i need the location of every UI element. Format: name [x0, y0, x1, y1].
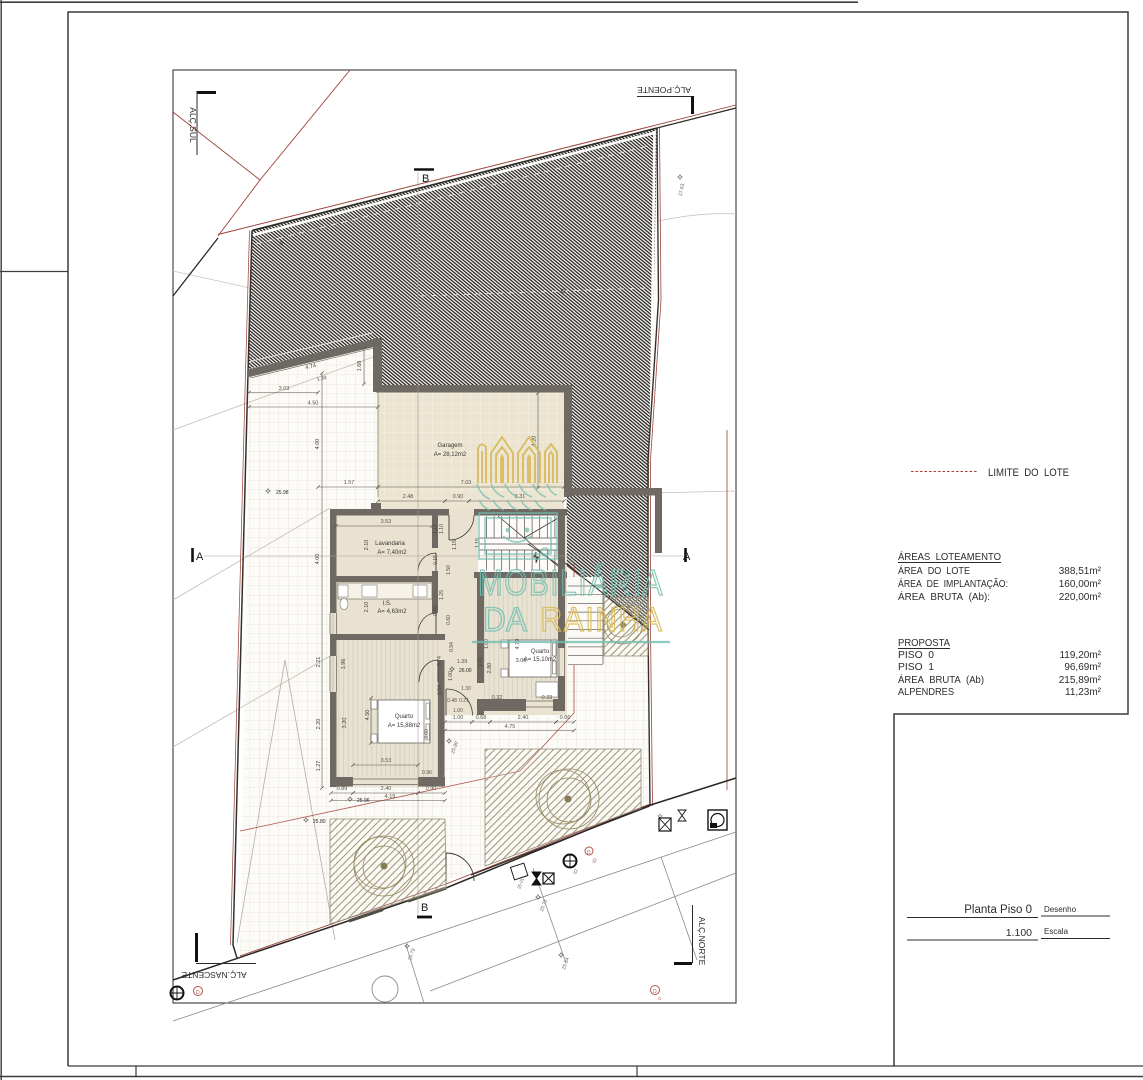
svg-text:0.74: 0.74	[437, 656, 443, 666]
svg-text:25.96: 25.96	[357, 798, 370, 804]
svg-text:A= 15,10m2: A= 15,10m2	[524, 657, 557, 663]
svg-text:4.50: 4.50	[365, 710, 371, 721]
svg-text:1.57: 1.57	[344, 480, 355, 486]
svg-text:4.00: 4.00	[315, 554, 321, 565]
svg-text:ALPENDRES: ALPENDRES	[898, 687, 954, 698]
svg-text:PROPOSTA: PROPOSTA	[898, 637, 950, 649]
svg-text:ÁREA DO LOTE: ÁREA DO LOTE	[898, 564, 970, 577]
svg-text:D: D	[653, 989, 657, 995]
svg-text:1.00: 1.00	[448, 671, 454, 681]
svg-text:1.27: 1.27	[316, 761, 322, 772]
svg-text:Escala: Escala	[1044, 927, 1069, 936]
svg-text:1.39: 1.39	[457, 659, 468, 665]
svg-text:A= 4,63m2: A= 4,63m2	[377, 609, 407, 615]
svg-text:1.96: 1.96	[341, 659, 347, 670]
svg-text:1.10: 1.10	[439, 524, 445, 534]
svg-text:220,00m²: 220,00m²	[1059, 592, 1102, 603]
svg-text:0.90: 0.90	[426, 786, 437, 792]
svg-text:215,89m²: 215,89m²	[1059, 675, 1102, 686]
svg-text:7.03: 7.03	[461, 480, 472, 486]
svg-text:11,23m²: 11,23m²	[1065, 687, 1102, 698]
svg-text:ALÇ.NASCENTE: ALÇ.NASCENTE	[181, 970, 247, 980]
svg-text:Quarto: Quarto	[395, 714, 414, 720]
svg-text:3.06: 3.06	[516, 658, 527, 664]
svg-text:1.00: 1.00	[478, 657, 484, 667]
svg-text:2.10: 2.10	[364, 602, 370, 613]
svg-text:4.19: 4.19	[385, 794, 396, 800]
svg-text:ÁREA BRUTA (Ab): ÁREA BRUTA (Ab)	[898, 673, 984, 686]
svg-text:2.40: 2.40	[381, 786, 392, 792]
svg-text:A: A	[683, 551, 691, 563]
svg-text:RAINHA: RAINHA	[541, 601, 664, 639]
svg-text:2.10: 2.10	[364, 540, 370, 551]
svg-text:2.40: 2.40	[518, 715, 529, 721]
svg-text:388,51m²: 388,51m²	[1059, 566, 1102, 577]
svg-text:26.00: 26.00	[459, 668, 472, 674]
svg-text:25.98: 25.98	[276, 490, 289, 496]
svg-text:Lavandaria: Lavandaria	[375, 541, 405, 547]
svg-text:4.75: 4.75	[505, 724, 516, 730]
svg-text:2.21: 2.21	[316, 657, 322, 668]
svg-text:1.50: 1.50	[446, 565, 452, 575]
svg-text:4.00: 4.00	[315, 439, 321, 450]
svg-text:D: D	[587, 850, 591, 856]
svg-text:1.100: 1.100	[1006, 927, 1032, 939]
svg-text:0.15: 0.15	[433, 555, 439, 565]
svg-text:3.53: 3.53	[381, 758, 392, 764]
svg-text:PISO 0: PISO 0	[898, 650, 934, 661]
svg-text:B: B	[421, 902, 428, 914]
svg-text:ÁREA BRUTA (Ab):: ÁREA BRUTA (Ab):	[898, 590, 990, 603]
svg-text:1.00: 1.00	[453, 708, 463, 714]
svg-text:2.20: 2.20	[316, 719, 322, 730]
svg-text:ALÇ.NORTE: ALÇ.NORTE	[697, 917, 707, 966]
svg-text:3.03: 3.03	[279, 386, 290, 392]
svg-text:Planta Piso 0: Planta Piso 0	[964, 904, 1032, 916]
svg-text:A: A	[196, 551, 204, 563]
svg-text:Garagem: Garagem	[437, 443, 462, 449]
svg-text:160,00m²: 160,00m²	[1059, 579, 1102, 590]
svg-text:3.53: 3.53	[381, 519, 392, 525]
svg-text:ÁREAS LOTEAMENTO: ÁREAS LOTEAMENTO	[898, 550, 1001, 563]
svg-text:4.50: 4.50	[308, 401, 319, 407]
svg-text:B: B	[422, 173, 429, 185]
svg-text:Desenho: Desenho	[1044, 905, 1077, 914]
svg-text:ALÇ.POENTE: ALÇ.POENTE	[637, 85, 691, 95]
svg-text:MOBILIÁRIA: MOBILIÁRIA	[478, 562, 664, 603]
svg-text:2.48: 2.48	[403, 494, 414, 500]
svg-text:0.89: 0.89	[337, 786, 348, 792]
svg-text:ÁREA DE IMPLANTAÇÃO:: ÁREA DE IMPLANTAÇÃO:	[898, 577, 1008, 590]
svg-text:1.00: 1.00	[484, 639, 490, 649]
svg-text:1.68: 1.68	[357, 361, 363, 372]
svg-text:1.30: 1.30	[461, 686, 471, 692]
svg-text:1.15: 1.15	[452, 540, 458, 550]
svg-text:A= 7,40m2: A= 7,40m2	[377, 550, 407, 556]
svg-text:LIMITE DO LOTE: LIMITE DO LOTE	[988, 467, 1069, 479]
svg-text:D: D	[196, 990, 200, 996]
svg-text:DA: DA	[483, 601, 527, 639]
svg-text:0.94: 0.94	[449, 642, 455, 652]
svg-text:0.32: 0.32	[492, 695, 503, 701]
svg-text:0.90: 0.90	[453, 494, 464, 500]
svg-text:ALÇ.SUL: ALÇ.SUL	[188, 107, 198, 143]
svg-text:0.68: 0.68	[476, 715, 487, 721]
svg-text:I.S.: I.S.	[382, 601, 391, 607]
svg-text:0.60: 0.60	[446, 615, 452, 625]
svg-text:1.00: 1.00	[453, 715, 464, 721]
svg-text:3.60: 3.60	[424, 729, 430, 739]
svg-text:0.66: 0.66	[560, 715, 571, 721]
svg-text:119,20m²: 119,20m²	[1059, 650, 1101, 661]
svg-text:Quarto: Quarto	[531, 649, 550, 655]
svg-text:A= 28,12m2: A= 28,12m2	[434, 452, 467, 458]
svg-text:4.79: 4.79	[515, 639, 521, 650]
svg-text:A= 15,88m2: A= 15,88m2	[388, 723, 421, 729]
svg-text:25.80: 25.80	[313, 819, 326, 825]
svg-text:1.15: 1.15	[475, 538, 481, 548]
svg-text:PISO 1: PISO 1	[898, 662, 934, 673]
svg-text:0.21: 0.21	[459, 698, 469, 704]
svg-text:0.65: 0.65	[433, 606, 439, 616]
svg-text:0.48: 0.48	[447, 698, 457, 704]
svg-text:0.54: 0.54	[437, 685, 443, 695]
svg-text:3.20: 3.20	[342, 718, 348, 729]
svg-text:1.25: 1.25	[439, 590, 445, 600]
svg-text:0.33: 0.33	[542, 695, 553, 701]
svg-text:96,69m²: 96,69m²	[1064, 662, 1101, 673]
svg-text:2.80: 2.80	[487, 663, 493, 674]
svg-text:0.96: 0.96	[422, 770, 432, 776]
